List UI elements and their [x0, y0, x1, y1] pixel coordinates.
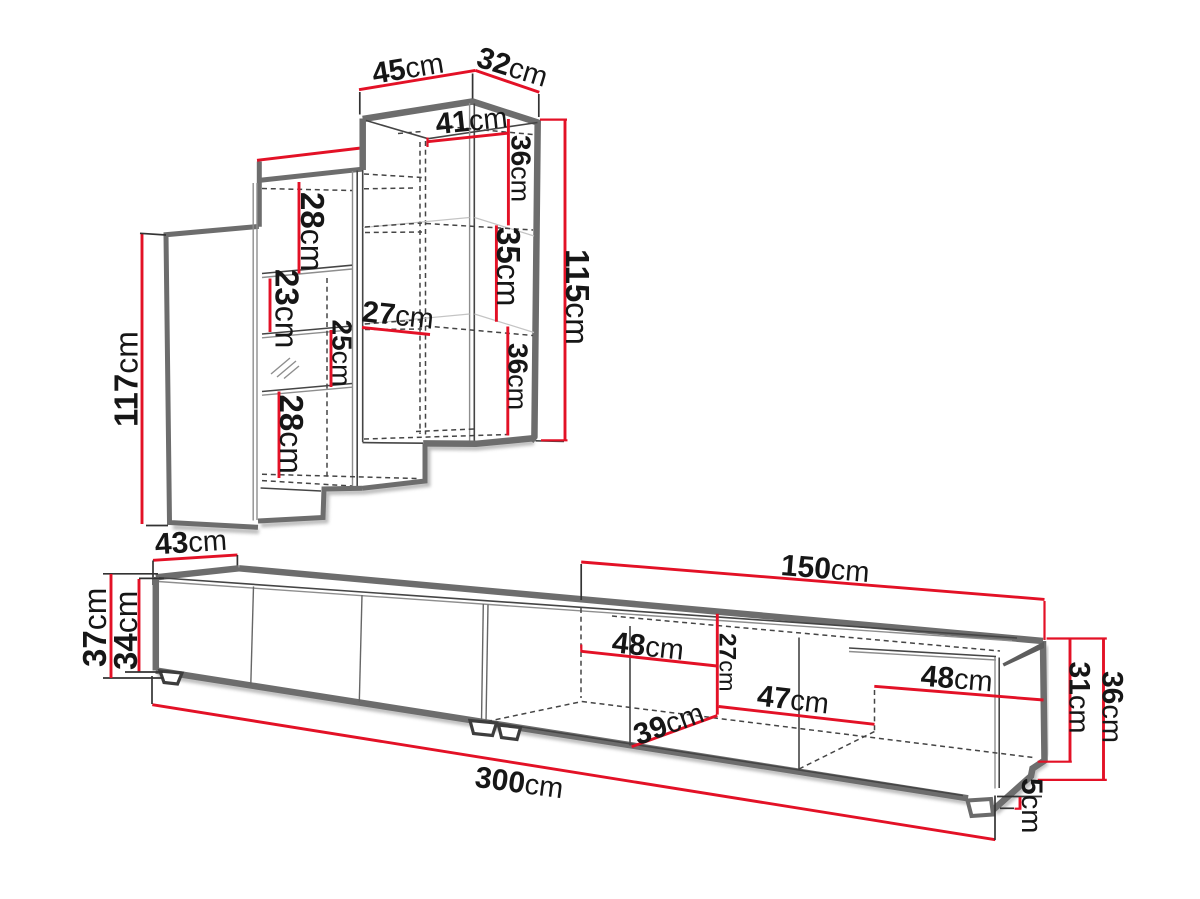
svg-text:36cm: 36cm: [503, 343, 534, 410]
svg-text:115cm: 115cm: [559, 249, 596, 345]
svg-text:117cm: 117cm: [108, 331, 145, 427]
svg-text:23cm: 23cm: [269, 269, 306, 348]
svg-text:5cm: 5cm: [1015, 778, 1048, 833]
svg-text:35cm: 35cm: [490, 227, 527, 306]
svg-text:43cm: 43cm: [154, 524, 228, 562]
svg-text:48cm: 48cm: [920, 660, 994, 699]
svg-text:28cm: 28cm: [294, 192, 331, 271]
svg-text:28cm: 28cm: [273, 395, 310, 474]
svg-text:34cm: 34cm: [107, 591, 144, 670]
svg-text:31cm: 31cm: [1063, 662, 1096, 734]
svg-text:25cm: 25cm: [327, 320, 358, 387]
svg-text:27cm: 27cm: [714, 633, 741, 692]
svg-text:36cm: 36cm: [1096, 671, 1129, 743]
svg-text:36cm: 36cm: [506, 135, 537, 202]
